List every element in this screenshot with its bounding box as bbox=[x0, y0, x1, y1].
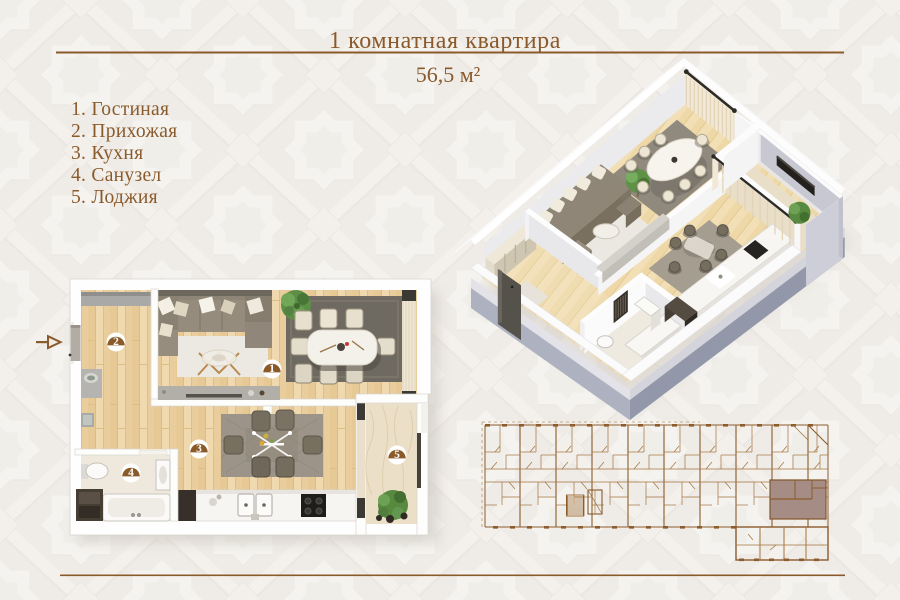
svg-text:5: 5 bbox=[394, 449, 400, 461]
svg-text:2: 2 bbox=[113, 336, 119, 348]
svg-text:4: 4 bbox=[128, 467, 134, 479]
svg-text:3: 3 bbox=[196, 443, 202, 455]
svg-text:1: 1 bbox=[269, 363, 275, 375]
